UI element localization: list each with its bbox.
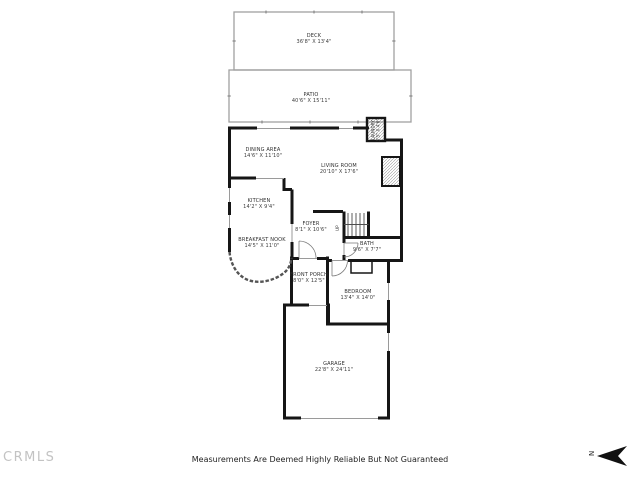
room-label-kitchen: KITCHEN 14'2" X 9'4"	[243, 198, 275, 210]
room-label-front-porch: FRONT PORCH 8'0" X 12'5"	[290, 272, 328, 284]
room-dims: 36'8" X 13'4"	[297, 39, 332, 45]
fireplace	[382, 157, 400, 186]
room-dims: 3'5" X 4'6"	[376, 119, 381, 142]
room-dims: 8'1" X 10'6"	[295, 227, 327, 233]
room-dims: 20'10" X 17'6"	[320, 169, 358, 175]
room-label-living: LIVING ROOM 20'10" X 17'6"	[320, 163, 358, 175]
room-label-bedroom: BEDROOM 13'4" X 14'0"	[341, 289, 376, 301]
room-label-dining: DINING AREA 14'6" X 11'10"	[244, 147, 282, 159]
room-label-breakfast-nook: BREAKFAST NOOK 14'5" X 11'0"	[238, 237, 285, 249]
bay-window	[230, 252, 292, 282]
room-label-foyer: FOYER 8'1" X 10'6"	[295, 221, 327, 233]
measurement-disclaimer: Measurements Are Deemed Highly Reliable …	[0, 455, 640, 464]
floorplan-drawing	[0, 0, 640, 480]
room-dims: 22'8" X 24'11"	[315, 367, 353, 373]
bedroom-closet	[351, 261, 372, 273]
stairs	[344, 213, 369, 236]
north-label: N	[588, 451, 596, 456]
floorplan-page: DECK 36'8" X 13'4" PATIO 40'6" X 15'11" …	[0, 0, 640, 480]
room-label-deck: DECK 36'8" X 13'4"	[297, 33, 332, 45]
room-label-laundry: LAUNDRY 3'5" X 4'6"	[372, 119, 381, 142]
room-dims: 13'4" X 14'0"	[341, 295, 376, 301]
stairs-up-label: UP	[336, 225, 341, 231]
room-dims: 14'5" X 11'0"	[238, 243, 285, 249]
room-label-bath: BATH 9'6" X 7'7"	[353, 241, 381, 253]
room-name: UP	[336, 225, 341, 231]
room-dims: 14'2" X 9'4"	[243, 204, 275, 210]
room-dims: 40'6" X 15'11"	[292, 98, 330, 104]
room-dims: 9'6" X 7'7"	[353, 247, 381, 253]
north-arrow: N	[583, 441, 633, 471]
room-label-garage: GARAGE 22'8" X 24'11"	[315, 361, 353, 373]
room-dims: 14'6" X 11'10"	[244, 153, 282, 159]
room-dims: 8'0" X 12'5"	[290, 278, 328, 284]
north-arrow-icon	[597, 446, 627, 466]
room-label-patio: PATIO 40'6" X 15'11"	[292, 92, 330, 104]
